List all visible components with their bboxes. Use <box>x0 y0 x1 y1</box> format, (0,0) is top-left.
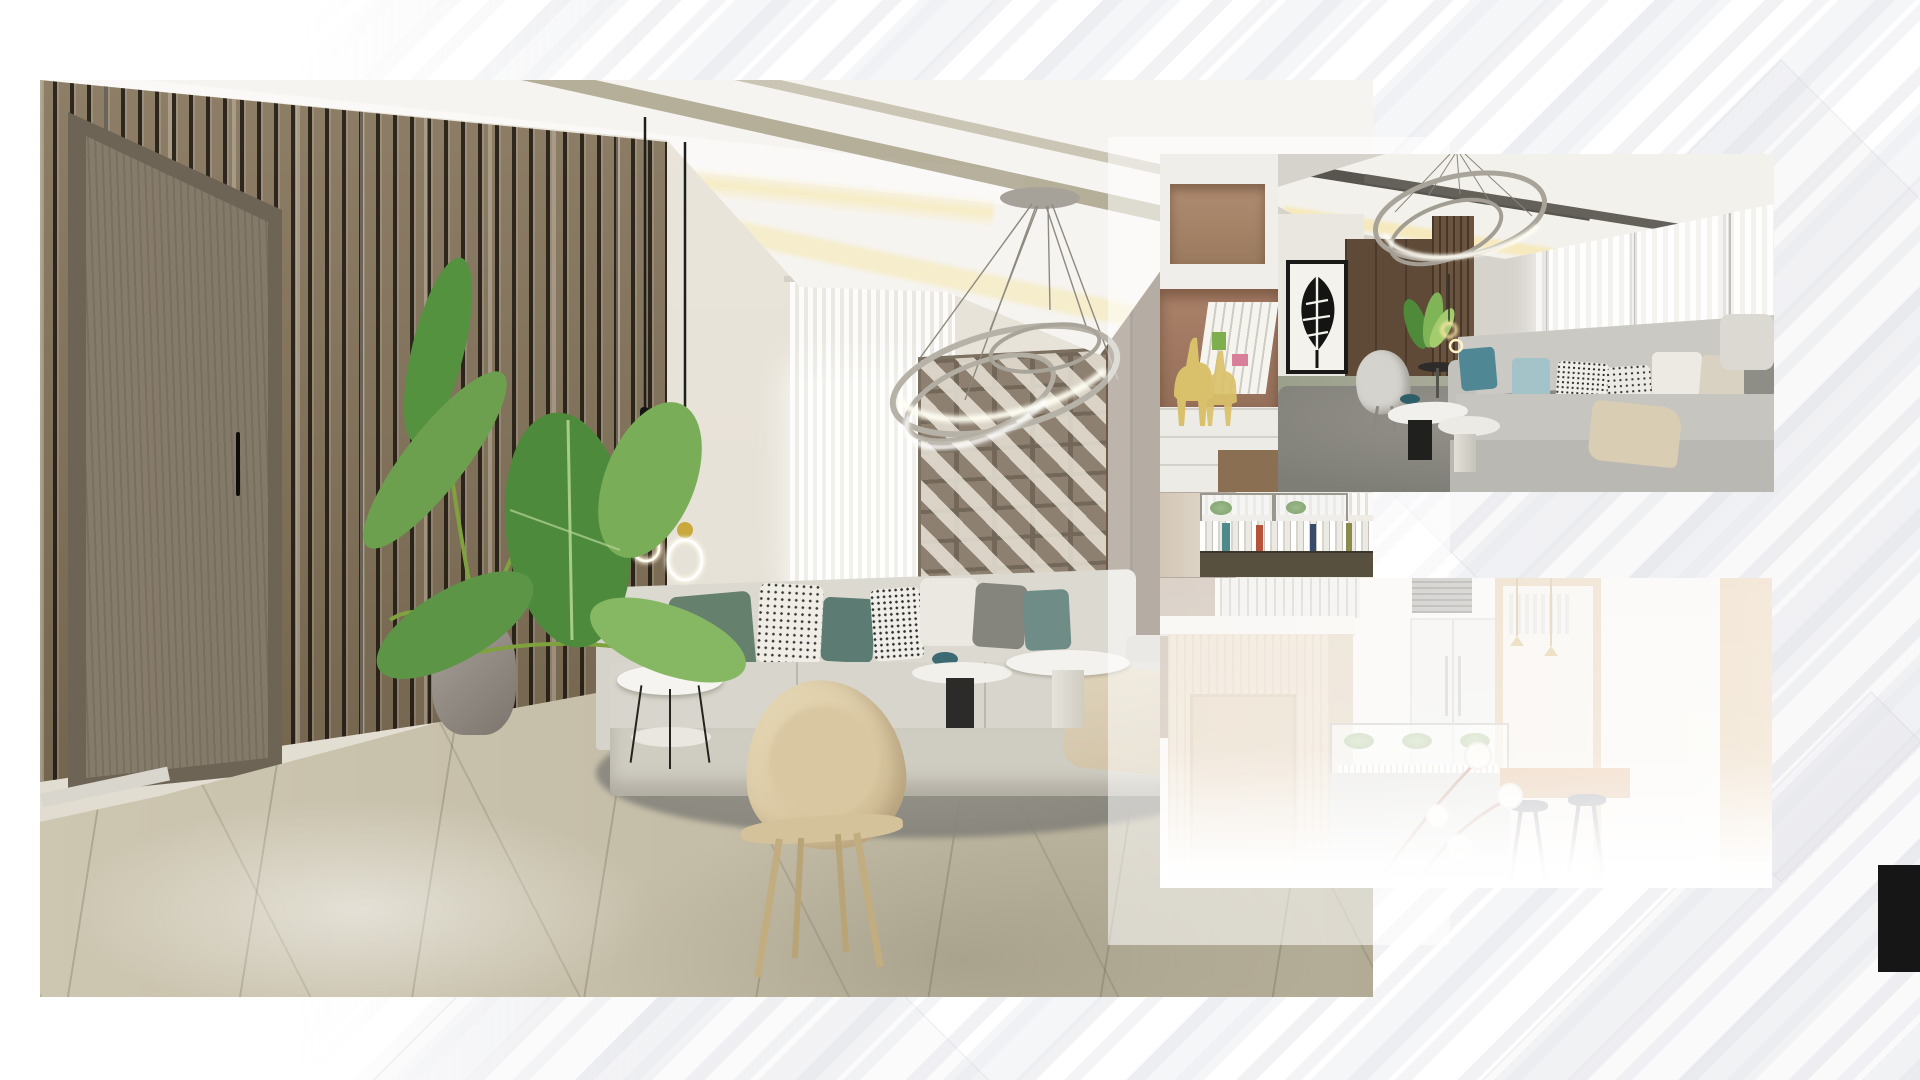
chandelier-rings <box>1368 159 1553 277</box>
book-teal <box>1222 523 1230 551</box>
shelf-front <box>1200 551 1373 577</box>
book-navy <box>1310 524 1316 551</box>
plant-in-cabinet <box>1210 501 1232 515</box>
chandelier-cords <box>1395 154 1532 216</box>
wood-column <box>1160 493 1200 577</box>
book-olive <box>1346 523 1352 551</box>
presentation-slide <box>0 0 1920 1080</box>
inset-render-living-room <box>1160 154 1774 492</box>
pendant-mini-rings <box>1442 274 1462 352</box>
black-accent-block <box>1878 865 1920 972</box>
bottom-fade <box>1160 578 1772 888</box>
plant-in-cabinet <box>1286 501 1306 514</box>
chandelier-mount <box>1000 187 1080 209</box>
leaf-wall-art <box>1288 262 1346 372</box>
inset-decor-shapes <box>1160 154 1774 492</box>
bookshelf-strip <box>1160 493 1373 577</box>
chandelier-rings <box>882 306 1128 459</box>
deer-figurines <box>1174 338 1237 426</box>
book-red <box>1256 525 1263 551</box>
banana-plant <box>344 252 757 701</box>
inset-render-kitchen <box>1160 578 1772 888</box>
